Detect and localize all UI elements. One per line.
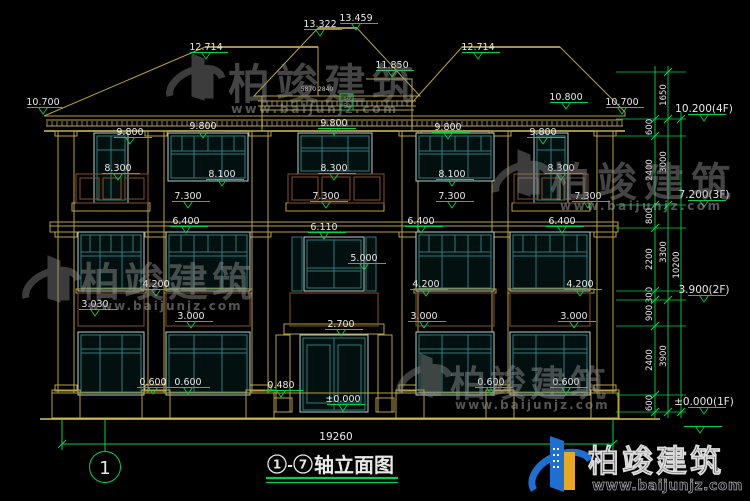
level-label: 10.800 (549, 92, 582, 103)
chain-dim-label: 3900 (659, 345, 669, 367)
level-label: 8.300 (104, 163, 131, 174)
axis-number: 1 (99, 458, 110, 479)
level-label: 12.714 (461, 42, 494, 53)
level-triangle-icon (700, 408, 709, 415)
logo-brand-text: 柏竣建筑 (588, 444, 724, 480)
level-label: 3.900(2F) (679, 284, 730, 296)
watermark-left: 柏竣建筑 www.baijunjz.com (26, 256, 256, 313)
level-label: 8.100 (438, 169, 465, 180)
level-label: 0.600 (174, 377, 201, 388)
watermark-top: 柏竣建筑 www.baijunjz.com (170, 54, 420, 116)
watermark-right: 柏竣建筑 www.baijunjz.com (496, 150, 738, 213)
level-label: 12.714 (189, 42, 222, 53)
baijun-logo: 柏竣建筑 www.baijunjz.com (532, 436, 743, 494)
level-triangle-icon (700, 296, 709, 303)
level-label: 7.300 (312, 191, 339, 202)
level-triangle-icon (352, 24, 361, 31)
level-triangle-icon (39, 108, 48, 115)
level-label: 0.480 (267, 380, 294, 391)
level-triangle-icon (570, 322, 579, 329)
window-1f-b1 (78, 332, 144, 395)
level-label: ±0.000(1F) (674, 396, 734, 408)
logo-building-blue (550, 436, 564, 492)
chain-dim-label: 2400 (645, 349, 655, 371)
title-dash: - (287, 458, 293, 474)
level-triangle-icon (187, 322, 196, 329)
cad-elevation-drawing: 1650600240080022003009002400600300033003… (0, 0, 750, 501)
level-triangle-icon (696, 427, 705, 434)
title-axis-left: 1 (273, 458, 281, 472)
level-label: 6.400 (172, 216, 199, 227)
watermark-url: www.baijunjz.com (231, 101, 399, 116)
title-axis-right: 7 (299, 458, 307, 472)
title-text: 轴立面图 (314, 453, 394, 477)
drawing-title: 1 - 7 轴立面图 (266, 453, 398, 483)
overall-dimension: 19260 (58, 420, 617, 450)
level-triangle-icon (448, 202, 457, 209)
level-label: 4.200 (566, 279, 593, 290)
level-label: 9.800 (320, 118, 347, 129)
chain-dim-label: 2200 (645, 248, 655, 270)
level-label: 8.300 (320, 163, 347, 174)
level-label: 8.100 (208, 169, 235, 180)
level-label: 9.800 (529, 127, 556, 138)
level-label: 9.800 (116, 127, 143, 138)
level-label: 3.000 (410, 311, 437, 322)
level-label: 6.110 (310, 222, 337, 233)
chain-dim-label: 600 (645, 119, 655, 135)
level-label: 13.322 (303, 19, 336, 30)
level-triangle-icon (700, 115, 709, 122)
level-label: 6.400 (548, 216, 575, 227)
axis-bubble: 1 (90, 420, 121, 483)
watermark-url: www.baijunjz.com (560, 199, 723, 213)
level-label: 9.800 (189, 121, 216, 132)
level-label: 2.700 (327, 319, 354, 330)
level-label: 13.459 (339, 13, 372, 24)
watermark-url: www.baijunjz.com (455, 398, 610, 412)
balcony-slabs-3f (72, 203, 590, 211)
balcony-door-2f-center (290, 237, 378, 326)
level-label: 6.400 (407, 216, 434, 227)
level-label: 10.700 (605, 97, 638, 108)
elevation-canvas: 1650600240080022003009002400600300033003… (0, 0, 750, 501)
level-label: 7.300 (174, 191, 201, 202)
level-label: 7.300 (438, 191, 465, 202)
chain-dim-label: 300 (645, 287, 655, 303)
level-triangle-icon (562, 103, 571, 110)
watermark-url: www.baijunjz.com (88, 299, 243, 313)
level-triangle-icon (420, 322, 429, 329)
chain-dim-label: 1650 (659, 84, 669, 106)
chain-dim-label: 600 (645, 395, 655, 411)
level-label: 5.000 (350, 253, 377, 264)
level-label: 9.800 (434, 122, 461, 133)
logo-url-text: www.baijunjz.com (592, 478, 743, 494)
floor-level-markers: 10.200(4F)7.200(3F)3.900(2F)±0.000(1F) (674, 103, 734, 433)
level-triangle-icon (316, 30, 325, 37)
level-label: 4.200 (412, 279, 439, 290)
level-triangle-icon (184, 202, 193, 209)
level-label: 0.600 (139, 377, 166, 388)
chain-dim-label: 10200 (672, 251, 682, 278)
level-label: 3.000 (560, 311, 587, 322)
roof-right-wing (400, 47, 625, 116)
level-label: ±0.000 (325, 394, 360, 405)
logo-building-yellow (564, 452, 575, 490)
overall-width-label: 19260 (319, 431, 352, 443)
level-label: 10.700 (26, 97, 59, 108)
dimension-chain: 1650600240080022003009002400600300033003… (616, 66, 686, 418)
chain-dim-label: 3300 (659, 241, 669, 263)
level-label: 10.200(4F) (675, 103, 733, 115)
level-triangle-icon (277, 391, 286, 398)
chain-dim-label: 900 (645, 305, 655, 321)
level-triangle-icon (474, 53, 483, 60)
